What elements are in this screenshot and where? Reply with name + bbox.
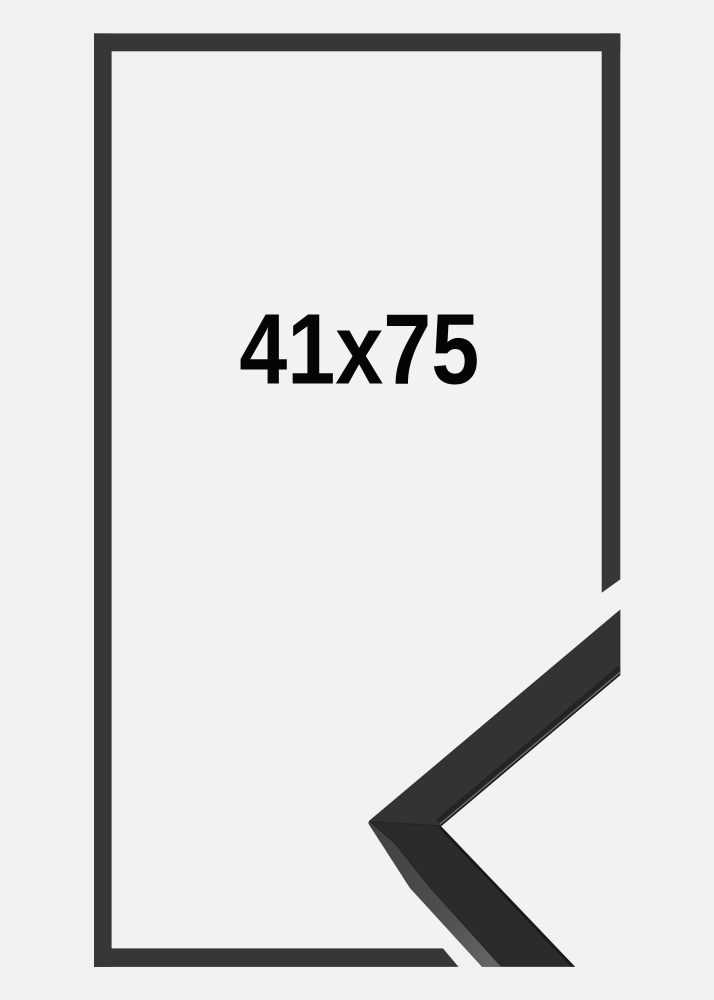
- svg-text:41x75: 41x75: [239, 294, 479, 406]
